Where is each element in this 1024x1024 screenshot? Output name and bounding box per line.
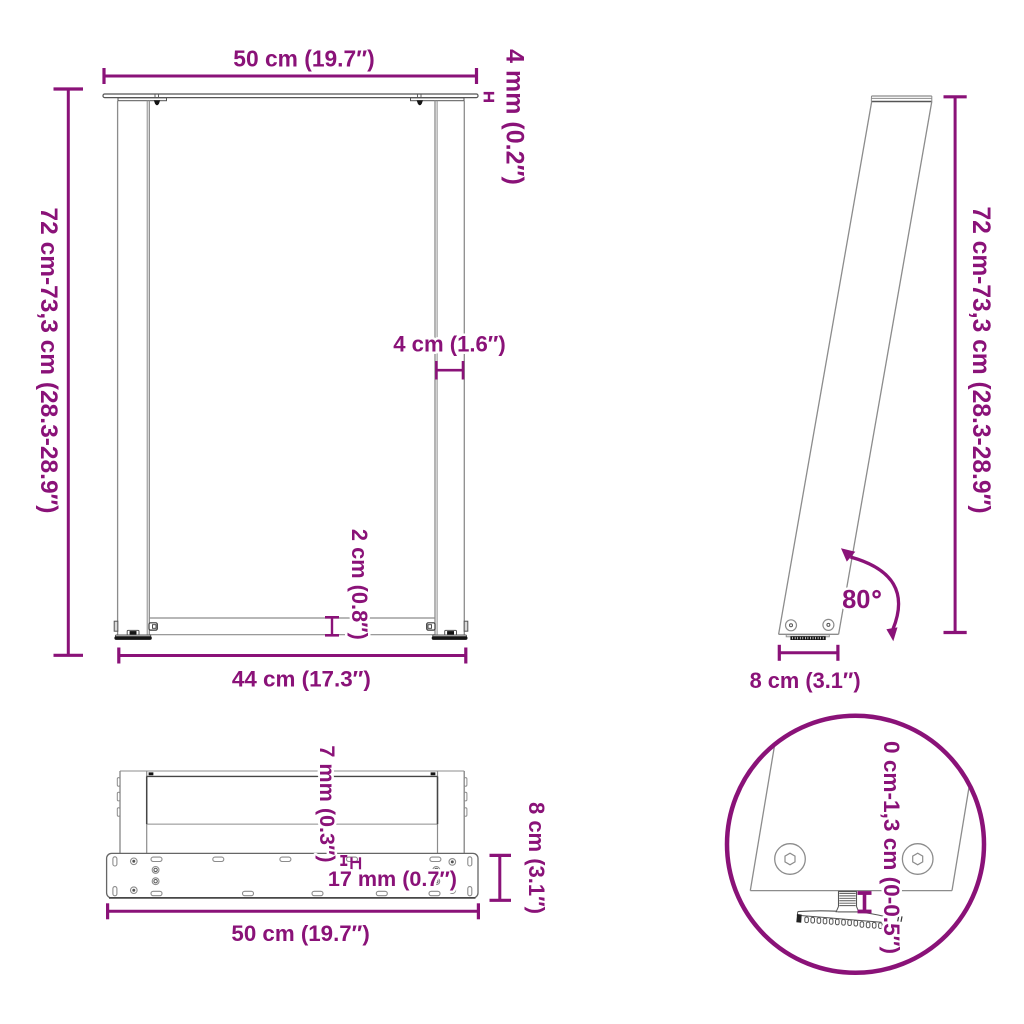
svg-text:50 cm (19.7″): 50 cm (19.7″) <box>231 921 369 946</box>
svg-text:0 cm-1,3 cm (0-0.5″): 0 cm-1,3 cm (0-0.5″) <box>879 741 904 954</box>
svg-text:7 mm (0.3″): 7 mm (0.3″) <box>315 745 340 862</box>
svg-text:2 cm (0.8″): 2 cm (0.8″) <box>347 529 372 640</box>
svg-text:8 cm (3.1″): 8 cm (3.1″) <box>750 668 861 693</box>
svg-text:4 cm (1.6″): 4 cm (1.6″) <box>393 332 506 357</box>
svg-text:17 mm (0.7″): 17 mm (0.7″) <box>328 866 457 891</box>
svg-text:50 cm (19.7″): 50 cm (19.7″) <box>233 46 374 72</box>
svg-text:8 cm (3.1″): 8 cm (3.1″) <box>524 802 549 914</box>
svg-text:72 cm-73,3 cm (28.3-28.9″): 72 cm-73,3 cm (28.3-28.9″) <box>35 208 62 514</box>
svg-text:4 mm (0.2″): 4 mm (0.2″) <box>501 49 529 185</box>
svg-text:80: 80 <box>842 586 870 614</box>
svg-text:72 cm-73,3 cm (28.3-28.9″): 72 cm-73,3 cm (28.3-28.9″) <box>967 206 994 513</box>
svg-text:44 cm (17.3″): 44 cm (17.3″) <box>232 667 371 692</box>
